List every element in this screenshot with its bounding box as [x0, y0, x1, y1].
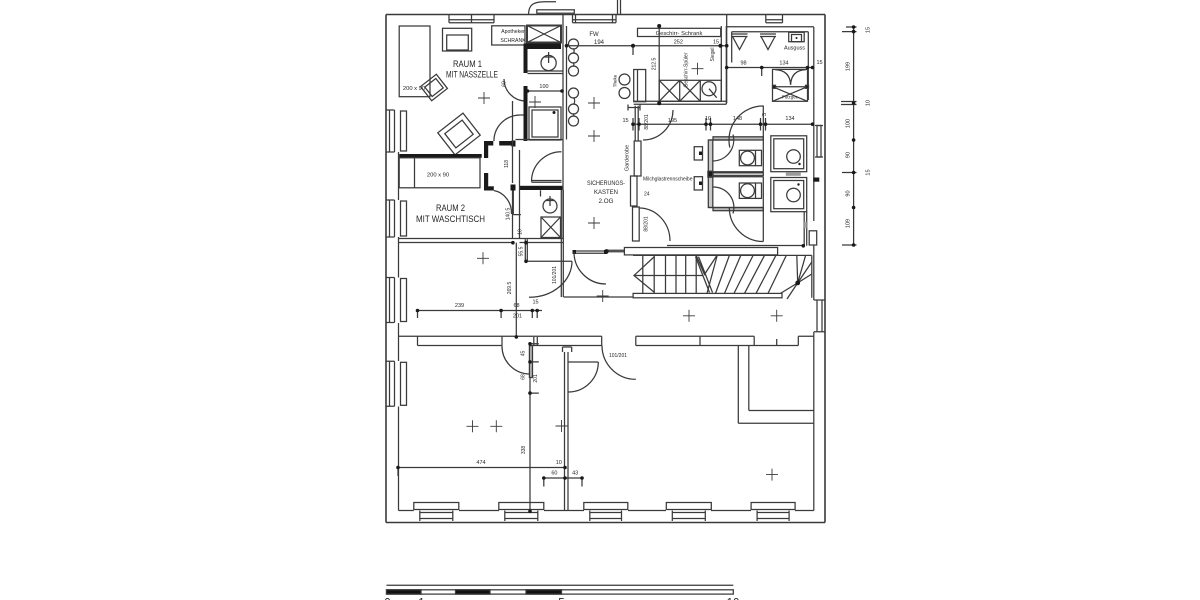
- svg-text:15: 15: [866, 169, 872, 175]
- svg-text:60: 60: [551, 471, 557, 477]
- svg-text:10: 10: [705, 116, 711, 122]
- svg-text:100: 100: [539, 84, 548, 90]
- svg-text:15: 15: [713, 40, 719, 46]
- svg-text:90: 90: [846, 152, 852, 158]
- svg-text:RAUM 1: RAUM 1: [453, 59, 482, 69]
- svg-text:101/201: 101/201: [609, 353, 627, 359]
- svg-text:109: 109: [846, 219, 852, 228]
- svg-text:24: 24: [644, 192, 650, 198]
- svg-text:90: 90: [846, 190, 852, 196]
- svg-text:10: 10: [866, 100, 872, 106]
- svg-text:195: 195: [668, 118, 677, 124]
- svg-text:15: 15: [866, 27, 872, 33]
- svg-text:201: 201: [513, 314, 522, 320]
- svg-text:100: 100: [846, 119, 852, 128]
- svg-text:200 x 90: 200 x 90: [427, 173, 449, 179]
- svg-text:10: 10: [556, 460, 562, 466]
- svg-text:15: 15: [622, 118, 628, 124]
- svg-text:88/201: 88/201: [644, 114, 650, 130]
- svg-text:55.5: 55.5: [519, 246, 525, 256]
- svg-text:88/201: 88/201: [644, 216, 650, 232]
- svg-text:MIT WASCHTISCH: MIT WASCHTISCH: [416, 214, 485, 224]
- svg-text:Siegel: Siegel: [710, 48, 716, 62]
- svg-text:60: 60: [502, 81, 508, 87]
- svg-text:45: 45: [520, 351, 526, 357]
- svg-text:68: 68: [513, 303, 519, 309]
- svg-text:Putzger.: Putzger.: [782, 95, 799, 100]
- svg-text:Ausguss: Ausguss: [784, 46, 805, 52]
- svg-text:239: 239: [455, 303, 464, 309]
- svg-text:Geschirr- Schrank: Geschirr- Schrank: [656, 31, 703, 37]
- svg-text:118: 118: [504, 160, 510, 168]
- svg-text:Geschirr-Spüler: Geschirr-Spüler: [684, 52, 690, 87]
- svg-text:140.5: 140.5: [506, 208, 512, 221]
- svg-text:252: 252: [674, 40, 683, 46]
- svg-text:338: 338: [521, 446, 527, 455]
- svg-text:134: 134: [779, 61, 788, 67]
- svg-text:SICHERUNGS-: SICHERUNGS-: [587, 180, 625, 187]
- svg-text:101/201: 101/201: [552, 266, 558, 284]
- svg-text:2.OG: 2.OG: [599, 198, 614, 205]
- svg-text:134: 134: [785, 116, 794, 122]
- svg-text:Theke: Theke: [613, 74, 618, 87]
- svg-text:SCHRANK: SCHRANK: [500, 38, 526, 44]
- svg-text:KASTEN: KASTEN: [594, 189, 618, 196]
- svg-text:15: 15: [532, 300, 538, 306]
- svg-text:269.5: 269.5: [507, 282, 513, 295]
- svg-text:RAUM 2: RAUM 2: [436, 203, 465, 213]
- svg-text:199: 199: [846, 62, 852, 71]
- svg-text:10: 10: [518, 229, 524, 235]
- svg-text:Apotheker: Apotheker: [501, 29, 525, 35]
- svg-text:201: 201: [533, 374, 539, 383]
- svg-text:474: 474: [476, 460, 485, 466]
- svg-text:MIT NASSZELLE: MIT NASSZELLE: [446, 70, 498, 80]
- svg-text:212.5: 212.5: [652, 58, 658, 71]
- svg-text:68: 68: [520, 374, 526, 380]
- svg-text:Milchglastrennscheibe: Milchglastrennscheibe: [643, 177, 693, 183]
- svg-text:194: 194: [594, 40, 605, 46]
- svg-text:FW: FW: [589, 32, 599, 38]
- svg-text:15: 15: [816, 60, 822, 66]
- svg-text:43: 43: [572, 471, 578, 477]
- svg-text:98: 98: [740, 61, 746, 67]
- svg-text:Garderobe: Garderobe: [625, 145, 631, 171]
